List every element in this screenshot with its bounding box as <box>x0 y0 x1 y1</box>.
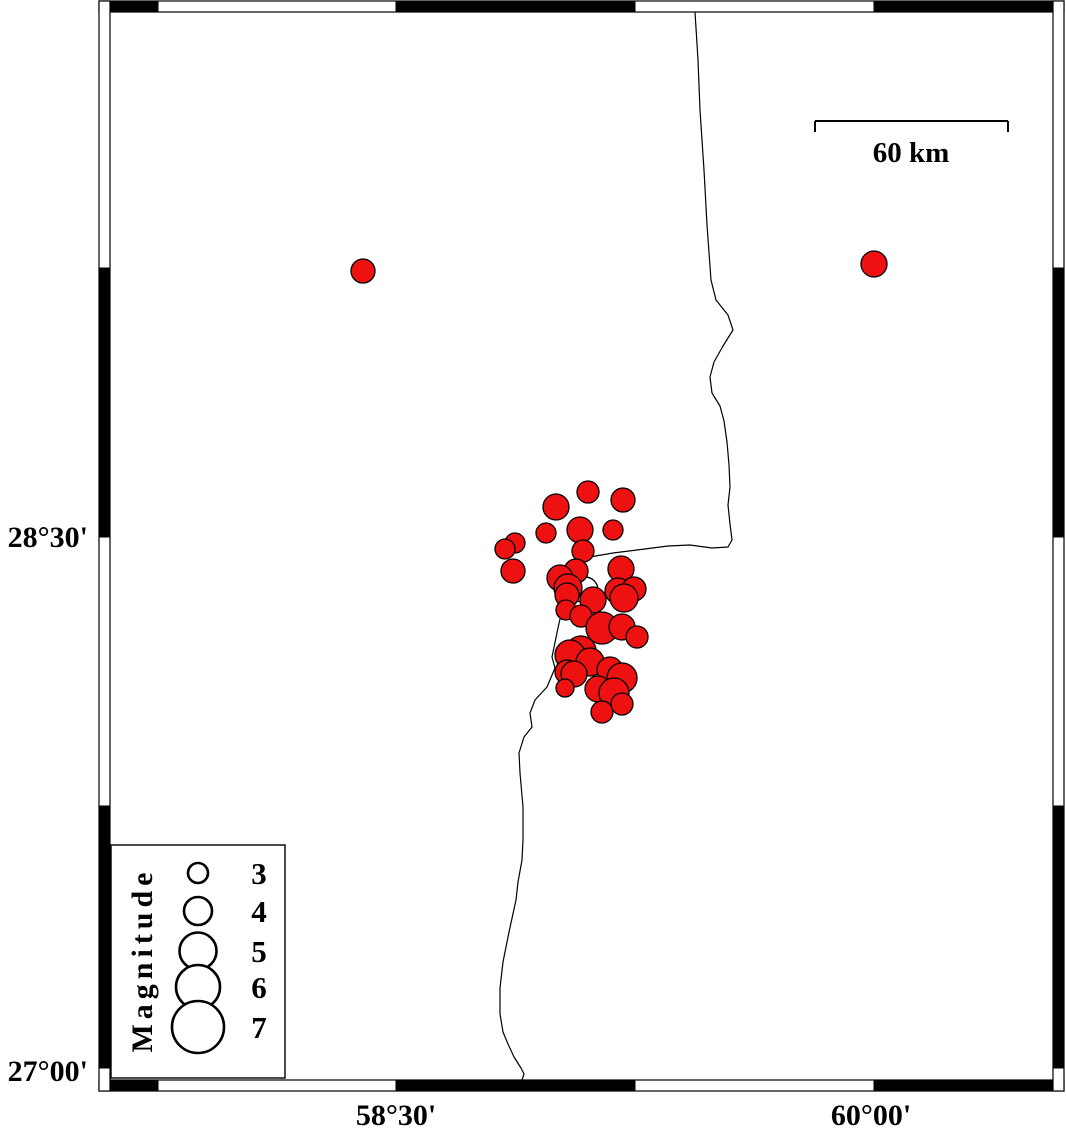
epicenter-marker <box>501 559 525 583</box>
epicenter-marker <box>591 701 613 723</box>
legend-magnitude-label: 6 <box>251 970 267 1005</box>
legend-magnitude-label: 3 <box>251 856 267 891</box>
axis-label-lon-60-00: 60°00' <box>831 1099 911 1129</box>
epicenter-marker <box>610 584 638 612</box>
magnitude-legend: Magnitude 34567 <box>111 845 285 1078</box>
epicenter-marker <box>543 494 569 520</box>
legend-title: Magnitude <box>126 867 159 1052</box>
epicenter-marker <box>611 693 633 715</box>
axis-label-lat-27-00: 27°00' <box>8 1055 88 1088</box>
river-line <box>500 12 733 1080</box>
frame-tick-segment <box>1053 268 1064 537</box>
legend-magnitude-label: 7 <box>251 1010 267 1045</box>
frame-tick-segment <box>874 1 1053 12</box>
legend-magnitude-circle <box>188 863 208 883</box>
frame-tick-segment <box>110 1 158 12</box>
epicenter-marker <box>567 517 593 543</box>
epicenter-markers <box>351 251 887 723</box>
legend-magnitude-circle <box>184 897 212 925</box>
scalebar: 60 km <box>815 121 1008 169</box>
axis-label-lon-58-30: 58°30' <box>356 1099 436 1129</box>
scalebar-bracket <box>815 121 1008 132</box>
map-canvas: 60 km Magnitude 34567 28°30' 27°00' 58°3… <box>0 0 1066 1129</box>
legend-magnitude-label: 4 <box>251 894 267 929</box>
axis-label-lat-28-30: 28°30' <box>8 521 88 554</box>
scalebar-label: 60 km <box>873 137 950 169</box>
epicenter-marker <box>861 251 887 277</box>
frame-tick-segment <box>396 1080 635 1091</box>
epicenter-marker <box>611 488 635 512</box>
legend-magnitude-label: 5 <box>251 934 267 969</box>
epicenter-marker <box>603 520 623 540</box>
river-polyline <box>500 12 733 1080</box>
legend-magnitude-circle <box>172 1001 224 1053</box>
epicenter-marker <box>536 523 556 543</box>
epicenter-marker <box>577 481 599 503</box>
seismicity-map-figure: 60 km Magnitude 34567 28°30' 27°00' 58°3… <box>0 0 1066 1129</box>
frame-tick-segment <box>874 1080 1053 1091</box>
epicenter-marker <box>556 679 574 697</box>
frame-tick-segment <box>1053 806 1064 1068</box>
frame-tick-segment <box>99 806 110 1068</box>
epicenter-marker <box>351 259 375 283</box>
frame-tick-segment <box>110 1080 158 1091</box>
epicenter-marker <box>495 539 515 559</box>
frame-tick-segment <box>396 1 635 12</box>
frame-tick-segment <box>99 268 110 537</box>
epicenter-marker <box>626 626 648 648</box>
